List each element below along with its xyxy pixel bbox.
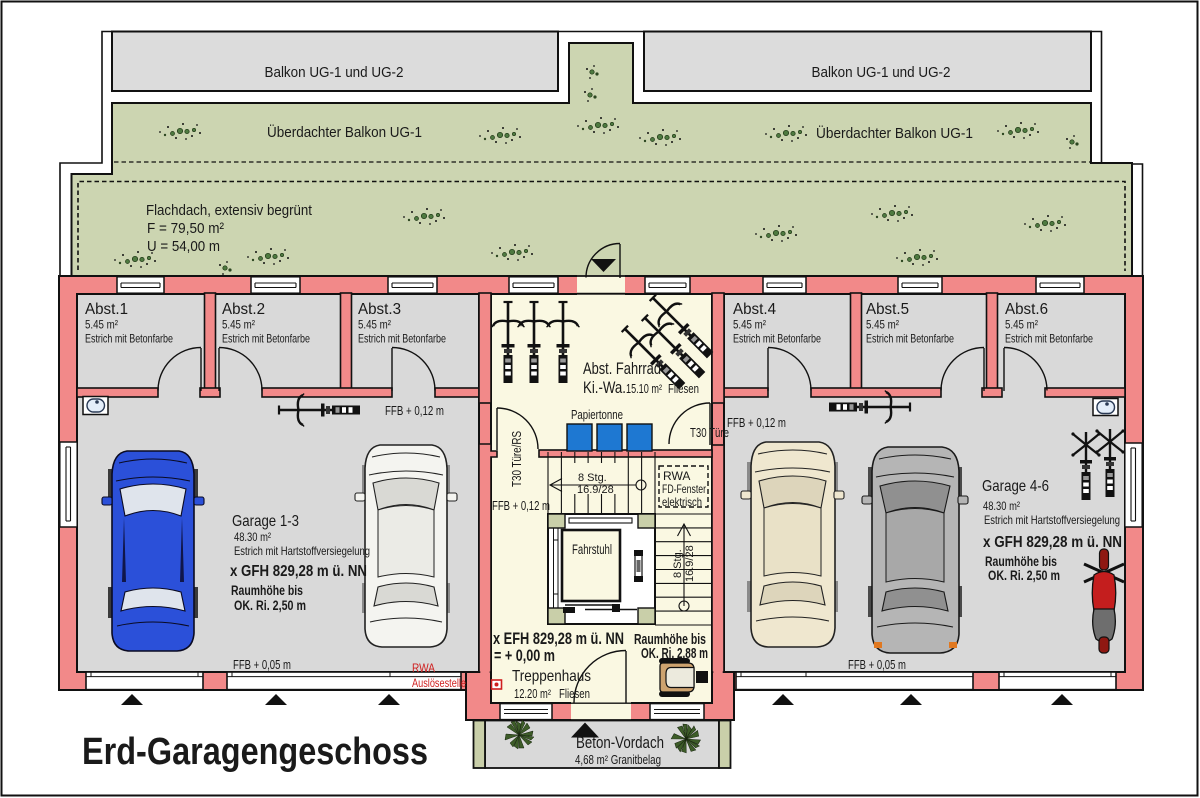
svg-text:RWA: RWA bbox=[412, 661, 435, 675]
svg-text:Abst.4: Abst.4 bbox=[733, 301, 776, 318]
svg-text:Fliesen: Fliesen bbox=[668, 382, 699, 396]
svg-text:5.45 m²: 5.45 m² bbox=[222, 318, 255, 332]
svg-text:T30 Türe: T30 Türe bbox=[690, 425, 729, 440]
svg-text:OK. Ri. 2,50 m: OK. Ri. 2,50 m bbox=[988, 568, 1060, 583]
svg-text:5.45 m²: 5.45 m² bbox=[866, 318, 899, 332]
svg-text:Überdachter Balkon UG-1: Überdachter Balkon UG-1 bbox=[816, 124, 973, 142]
svg-text:Beton-Vordach: Beton-Vordach bbox=[576, 734, 664, 752]
svg-text:x GFH 829,28 m ü. NN: x GFH 829,28 m ü. NN bbox=[983, 534, 1122, 551]
svg-text:Papiertonne: Papiertonne bbox=[571, 407, 623, 422]
svg-text:FFB + 0,12 m: FFB + 0,12 m bbox=[492, 499, 550, 513]
svg-text:Estrich mit Betonfarbe: Estrich mit Betonfarbe bbox=[1005, 332, 1093, 346]
svg-text:5.45 m²: 5.45 m² bbox=[358, 318, 391, 332]
svg-text:x GFH 829,28 m ü. NN: x GFH 829,28 m ü. NN bbox=[230, 563, 367, 580]
svg-text:12.20 m²: 12.20 m² bbox=[514, 687, 551, 701]
svg-text:Estrich mit Betonfarbe: Estrich mit Betonfarbe bbox=[85, 332, 173, 346]
svg-text:Abst.6: Abst.6 bbox=[1005, 301, 1048, 318]
svg-text:8 Stg.: 8 Stg. bbox=[578, 472, 607, 484]
svg-text:FFB + 0,05 m: FFB + 0,05 m bbox=[848, 658, 906, 672]
svg-text:= + 0,00 m: = + 0,00 m bbox=[494, 646, 555, 665]
svg-text:Estrich mit Betonfarbe: Estrich mit Betonfarbe bbox=[358, 332, 446, 346]
svg-text:Estrich mit Hartstoffversiegel: Estrich mit Hartstoffversiegelung bbox=[984, 513, 1120, 527]
svg-text:Estrich mit Hartstoffversiegel: Estrich mit Hartstoffversiegelung bbox=[234, 544, 370, 558]
svg-text:5.45 m²: 5.45 m² bbox=[85, 318, 118, 332]
svg-text:Abst.5: Abst.5 bbox=[866, 301, 909, 318]
svg-text:Raumhöhe bis: Raumhöhe bis bbox=[985, 554, 1057, 569]
svg-text:Balkon UG-1 und UG-2: Balkon UG-1 und UG-2 bbox=[265, 64, 404, 81]
svg-text:Flachdach, extensiv begrünt: Flachdach, extensiv begrünt bbox=[146, 202, 313, 219]
svg-text:5.45 m²: 5.45 m² bbox=[733, 318, 766, 332]
svg-text:Estrich mit Betonfarbe: Estrich mit Betonfarbe bbox=[866, 332, 954, 346]
svg-text:5.45 m²: 5.45 m² bbox=[1005, 318, 1038, 332]
svg-text:8 Stg.: 8 Stg. bbox=[672, 549, 684, 578]
svg-text:16.9/28: 16.9/28 bbox=[577, 484, 614, 496]
svg-text:F = 79,50 m²: F = 79,50 m² bbox=[147, 220, 224, 237]
svg-text:Estrich mit Betonfarbe: Estrich mit Betonfarbe bbox=[222, 332, 310, 346]
svg-text:Fliesen: Fliesen bbox=[559, 687, 590, 701]
svg-text:FFB + 0,12 m: FFB + 0,12 m bbox=[727, 416, 786, 430]
svg-text:Abst. Fahrrad: Abst. Fahrrad bbox=[583, 360, 661, 378]
svg-text:48.30 m²: 48.30 m² bbox=[234, 530, 271, 544]
svg-text:U = 54,00 m: U = 54,00 m bbox=[147, 238, 220, 255]
svg-text:FFB + 0,12 m: FFB + 0,12 m bbox=[385, 404, 444, 418]
svg-text:Balkon UG-1 und UG-2: Balkon UG-1 und UG-2 bbox=[812, 64, 951, 81]
svg-text:elektrisch: elektrisch bbox=[662, 495, 702, 509]
svg-text:T30 Türe/RS: T30 Türe/RS bbox=[509, 431, 524, 487]
svg-text:Ki.-Wa.: Ki.-Wa. bbox=[583, 379, 626, 397]
svg-text:48.30 m²: 48.30 m² bbox=[983, 499, 1020, 513]
svg-text:Fahrstuhl: Fahrstuhl bbox=[572, 542, 612, 557]
svg-text:Abst.2: Abst.2 bbox=[222, 301, 265, 318]
svg-text:4,68 m² Granitbelag: 4,68 m² Granitbelag bbox=[575, 753, 661, 767]
svg-text:Garage 4-6: Garage 4-6 bbox=[982, 478, 1049, 495]
svg-text:OK. Ri. 2,50 m: OK. Ri. 2,50 m bbox=[234, 598, 306, 613]
svg-text:15.10 m²: 15.10 m² bbox=[626, 382, 662, 396]
svg-text:Auslösestelle: Auslösestelle bbox=[412, 676, 466, 690]
svg-text:Überdachter Balkon UG-1: Überdachter Balkon UG-1 bbox=[267, 123, 422, 141]
svg-text:Raumhöhe bis: Raumhöhe bis bbox=[231, 583, 303, 598]
svg-text:Estrich mit Betonfarbe: Estrich mit Betonfarbe bbox=[733, 332, 821, 346]
svg-text:Treppenhaus: Treppenhaus bbox=[512, 668, 591, 685]
svg-text:FFB + 0,05 m: FFB + 0,05 m bbox=[233, 658, 291, 672]
svg-text:FD-Fenster: FD-Fenster bbox=[662, 482, 706, 496]
svg-text:16.9/28: 16.9/28 bbox=[684, 545, 696, 582]
svg-text:Abst.1: Abst.1 bbox=[85, 301, 128, 318]
svg-text:Abst.3: Abst.3 bbox=[358, 301, 401, 318]
svg-text:Garage 1-3: Garage 1-3 bbox=[232, 513, 299, 530]
svg-text:Erd-Garagengeschoss: Erd-Garagengeschoss bbox=[82, 731, 428, 773]
svg-text:RWA: RWA bbox=[663, 469, 690, 483]
